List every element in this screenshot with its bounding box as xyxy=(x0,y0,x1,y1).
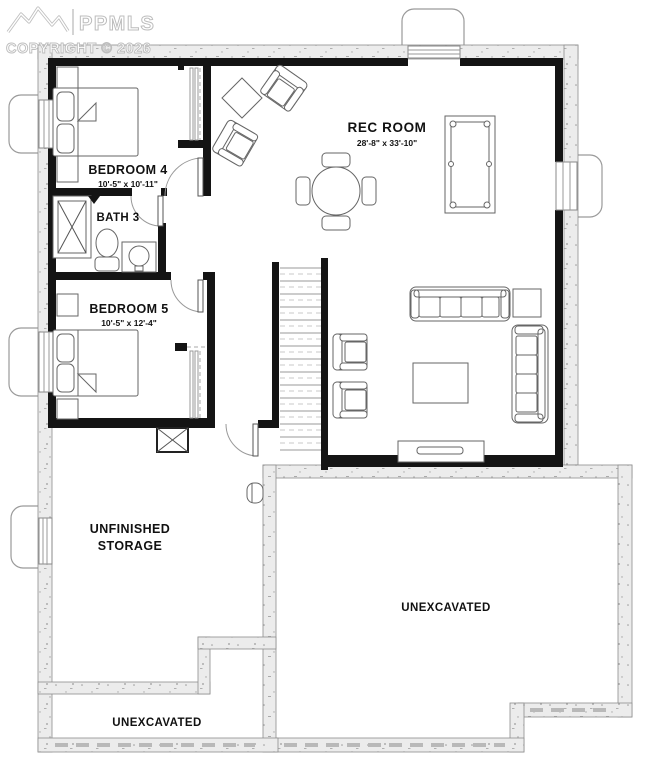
closet-sliding-door xyxy=(187,347,207,418)
sofa-symbol xyxy=(410,287,510,321)
window-well xyxy=(9,95,38,153)
nightstand-symbol xyxy=(57,399,78,419)
end-table-symbol xyxy=(513,289,541,317)
sump-symbol xyxy=(247,483,263,503)
shower-symbol xyxy=(53,196,100,258)
storage-fixtures xyxy=(157,428,263,503)
nightstand-symbol xyxy=(57,294,78,316)
window-well xyxy=(578,155,602,217)
room-dims-rec-room: 28'-8" x 33'-10" xyxy=(357,138,417,148)
window-symbol xyxy=(556,162,577,210)
toilet-symbol xyxy=(95,229,119,271)
armchair-symbol xyxy=(333,382,367,418)
mountain-logo-icon xyxy=(8,8,73,35)
side-table-symbol xyxy=(222,78,262,118)
room-dims-bedroom4: 10'-5" x 10'-11" xyxy=(98,179,158,189)
room-label-rec-room: REC ROOM xyxy=(347,120,426,135)
watermark-brand: PPMLS xyxy=(79,13,155,35)
room-label-bedroom5: BEDROOM 5 xyxy=(89,302,168,316)
sofa-symbol xyxy=(512,325,548,423)
furnace-symbol xyxy=(157,428,188,452)
bed-symbol xyxy=(53,330,138,396)
watermark-copyright: COPYRIGHT © 2026 xyxy=(6,41,151,57)
window-symbol xyxy=(408,46,460,58)
stairs-symbol xyxy=(280,268,321,450)
window-well xyxy=(9,328,38,396)
room-label-storage-line2: STORAGE xyxy=(98,539,162,553)
bed-symbol xyxy=(53,88,138,156)
armchair-symbol xyxy=(260,64,309,112)
room-label-bedroom4: BEDROOM 4 xyxy=(88,163,167,177)
window-well xyxy=(402,9,464,45)
door-swing xyxy=(171,280,203,312)
coffee-table-symbol xyxy=(413,363,468,403)
pool-table-symbol xyxy=(445,116,495,213)
window-well xyxy=(11,506,38,568)
sink-vanity-symbol xyxy=(122,242,156,272)
nightstand-symbol xyxy=(57,156,78,182)
tv-console-symbol xyxy=(398,441,484,462)
window-symbol xyxy=(39,518,52,564)
nightstand-symbol xyxy=(57,67,78,88)
closet-sliding-door xyxy=(190,68,200,140)
room-label-unexcavated-bottom: UNEXCAVATED xyxy=(112,717,201,729)
floor-plan-canvas: REC ROOM 28'-8" x 33'-10" BEDROOM 4 10'-… xyxy=(0,0,645,768)
room-label-storage-line1: UNFINISHED xyxy=(90,522,170,536)
door-swing xyxy=(226,424,258,456)
bath3-fixtures xyxy=(53,196,156,272)
armchair-symbol xyxy=(333,334,367,370)
round-table-symbol xyxy=(296,153,376,230)
room-dims-bedroom5: 10'-5" x 12'-4" xyxy=(101,318,157,328)
room-label-unexcavated-right: UNEXCAVATED xyxy=(401,602,490,614)
room-label-bath3: BATH 3 xyxy=(96,212,139,224)
watermark: PPMLS COPYRIGHT © 2026 xyxy=(2,2,192,62)
armchair-symbol xyxy=(211,119,258,167)
door-swing xyxy=(165,158,203,196)
floor-plan: REC ROOM 28'-8" x 33'-10" BEDROOM 4 10'-… xyxy=(0,0,645,768)
